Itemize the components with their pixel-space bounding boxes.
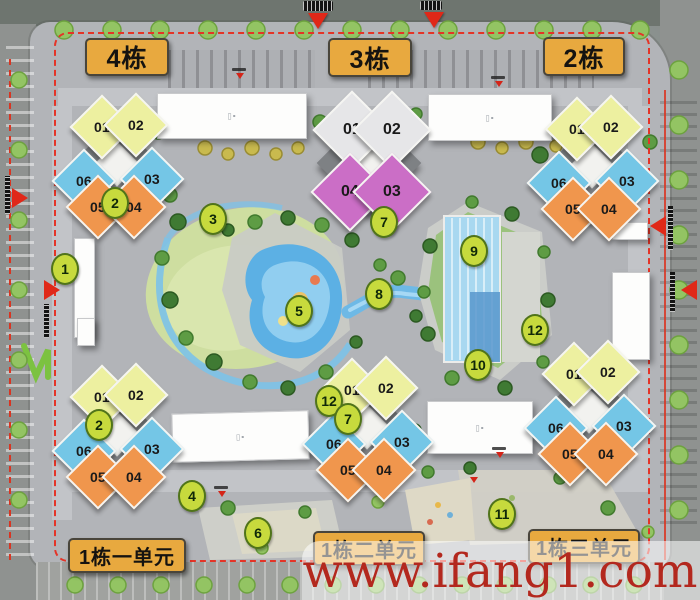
entrance-arrow-icon <box>681 280 697 300</box>
unit-number: 02 <box>128 117 144 133</box>
poi-marker: 2 <box>101 187 129 219</box>
unit-number: 02 <box>600 364 616 380</box>
site-plan: ▯▪ ▯▪ ▯▪ ▯▪ 0102060305040102040301020603… <box>0 0 700 600</box>
unit-number: 04 <box>126 469 142 485</box>
block-label: 3栋 <box>328 38 412 77</box>
unit-number: 03 <box>616 418 632 434</box>
building-cluster: 010206030504 <box>318 358 428 498</box>
poi-marker: 3 <box>199 203 227 235</box>
entrance-sign <box>668 206 673 250</box>
unit-number: 03 <box>383 183 401 201</box>
tree-icon <box>11 492 27 508</box>
poi-marker: 5 <box>285 295 313 327</box>
unit-number: 04 <box>601 201 617 217</box>
mini-entry-icon <box>495 81 503 87</box>
poi-marker: 7 <box>370 206 398 238</box>
building-use-mark: ▯▪ <box>227 112 236 121</box>
unit-number: 03 <box>394 434 410 450</box>
poi-marker: 10 <box>464 349 492 381</box>
tree-icon <box>239 577 255 593</box>
poi-marker: 11 <box>488 498 516 530</box>
tree-icon <box>11 72 27 88</box>
entrance-sign <box>670 272 675 312</box>
tree-icon <box>153 577 169 593</box>
block-label: 4栋 <box>85 38 169 76</box>
unit-number: 02 <box>128 387 144 403</box>
building-cluster: 010206030504 <box>68 365 178 505</box>
tree-icon <box>670 501 688 519</box>
building-cluster: 010206030504 <box>543 97 653 237</box>
mini-entry-icon <box>236 73 244 79</box>
watermark-url: www.ifang1.com <box>300 542 700 600</box>
tree-icon <box>11 212 27 228</box>
tree-icon <box>11 142 27 158</box>
commercial-building: ▯▪ <box>157 93 307 139</box>
entrance-sign <box>44 304 49 338</box>
tree-icon <box>11 422 27 438</box>
mini-entry-label <box>491 76 505 79</box>
entrance-sign <box>420 1 442 10</box>
mini-entry-icon <box>496 452 504 458</box>
unit-number: 02 <box>383 121 401 139</box>
poi-marker: 12 <box>521 314 549 346</box>
tree-icon <box>67 577 83 593</box>
mini-entry-label <box>232 68 246 71</box>
tree-icon <box>282 577 298 593</box>
mini-entry-icon <box>218 491 226 497</box>
building-cluster: 010206030504 <box>540 342 650 482</box>
building-use-mark: ▯▪ <box>475 423 484 432</box>
poi-marker: 8 <box>365 278 393 310</box>
entrance-arrow-icon <box>44 280 60 300</box>
unit-number: 04 <box>598 446 614 462</box>
mini-entry-label <box>214 486 228 489</box>
entrance-arrow-icon <box>308 13 328 29</box>
unit-number: 03 <box>619 173 635 189</box>
tree-icon <box>670 391 688 409</box>
service-building <box>77 318 95 346</box>
poi-marker: 7 <box>334 403 362 435</box>
entrance-arrow-icon <box>650 216 666 236</box>
tree-icon <box>670 336 688 354</box>
entrance-sign <box>5 176 10 214</box>
commercial-building: ▯▪ <box>171 410 309 463</box>
tree-icon <box>196 577 212 593</box>
tree-icon <box>11 352 27 368</box>
unit-number: 03 <box>144 441 160 457</box>
poi-marker: 9 <box>460 235 488 267</box>
tree-icon <box>670 61 688 79</box>
unit-number: 02 <box>603 119 619 135</box>
block-label: 1栋一单元 <box>68 538 186 573</box>
poi-marker: 4 <box>178 480 206 512</box>
entrance-arrow-icon <box>12 188 28 208</box>
commercial-building: ▯▪ <box>427 401 533 454</box>
tree-icon <box>670 446 688 464</box>
mini-entry-icon <box>470 477 478 483</box>
tree-icon <box>11 282 27 298</box>
entrance-arrow-icon <box>424 12 444 28</box>
unit-number: 04 <box>376 462 392 478</box>
entrance-sign <box>303 1 333 11</box>
unit-number: 03 <box>144 171 160 187</box>
tree-icon <box>670 116 688 134</box>
building-use-mark: ▯▪ <box>485 113 494 122</box>
building-use-mark: ▯▪ <box>236 432 245 441</box>
commercial-building: ▯▪ <box>428 94 552 141</box>
poi-marker: 6 <box>244 517 272 549</box>
poi-marker: 2 <box>85 409 113 441</box>
block-label: 2栋 <box>543 37 625 76</box>
tree-icon <box>110 577 126 593</box>
unit-number: 02 <box>378 380 394 396</box>
mini-entry-label <box>492 447 506 450</box>
tree-icon <box>670 171 688 189</box>
